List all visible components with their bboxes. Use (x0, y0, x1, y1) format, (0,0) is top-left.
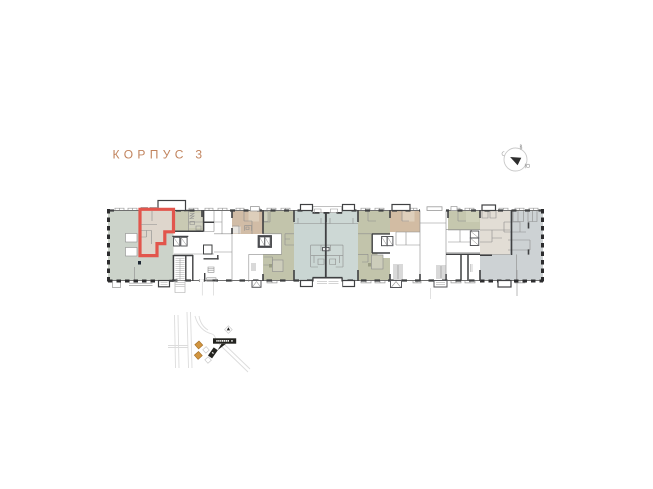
svg-text:КОРПУС 3: КОРПУС 3 (113, 147, 207, 161)
